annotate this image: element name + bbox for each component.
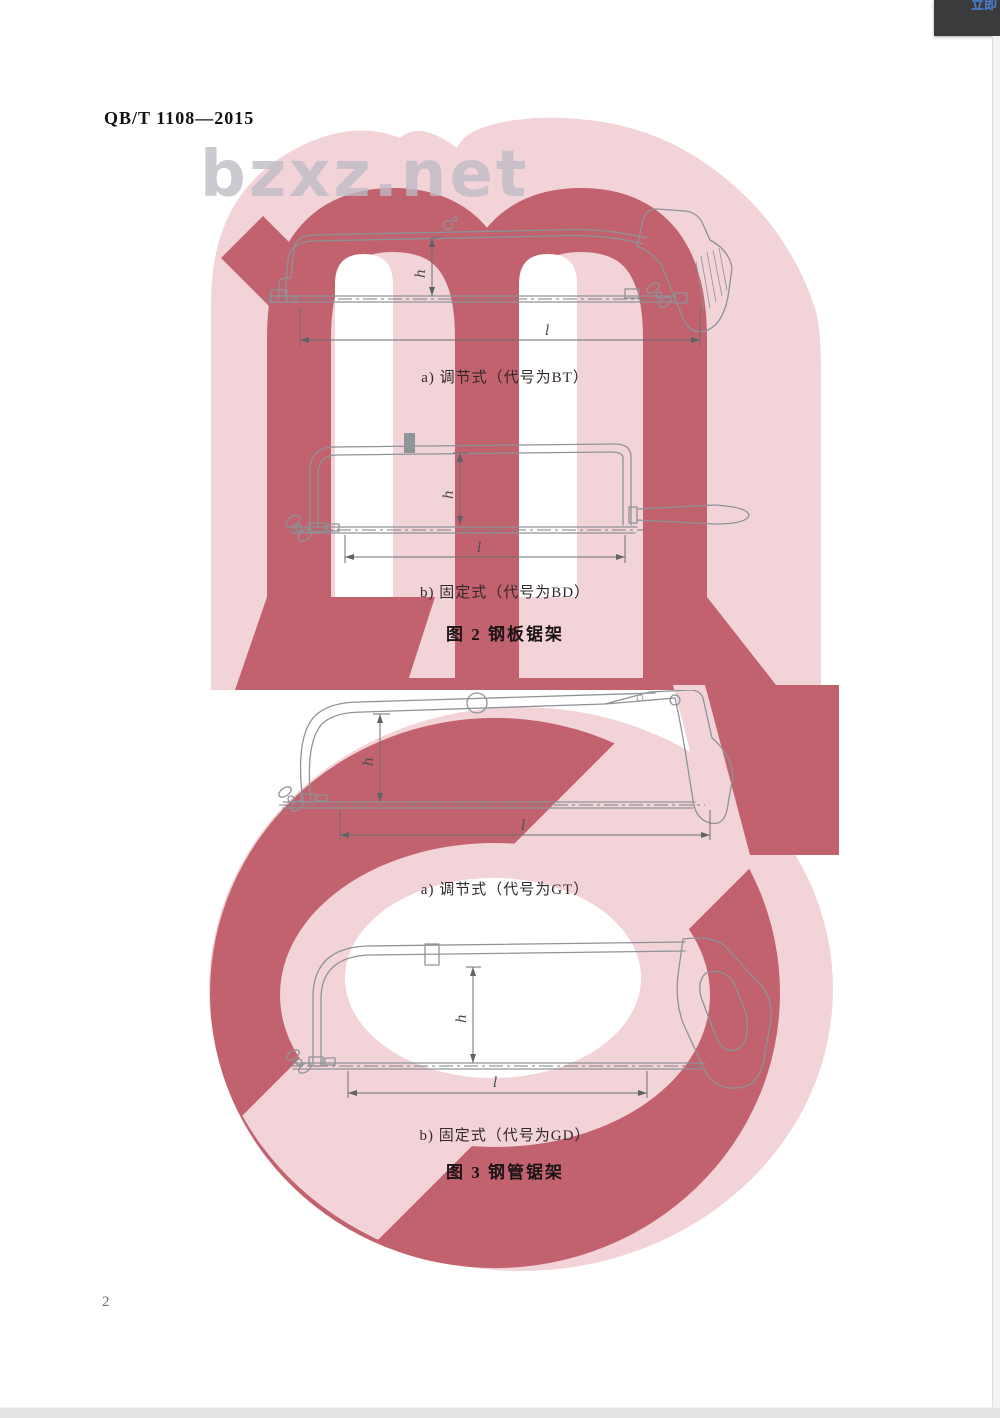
corner-overlay-button[interactable]: 立即 — [934, 0, 1000, 36]
dim-h-label: h — [413, 269, 429, 278]
page-number: 2 — [102, 1294, 110, 1311]
figure3-title: 图 3 钢管锯架 — [205, 1158, 805, 1183]
dim-h-label: h — [361, 757, 377, 766]
figure3-drawing-gt: h l — [275, 690, 775, 855]
dim-l-label: l — [521, 818, 525, 834]
page-bottom-edge — [0, 1407, 1000, 1418]
figure2-caption-b: b) 固定式（代号为BD） — [205, 581, 805, 602]
corner-overlay-label[interactable]: 立即 — [971, 0, 997, 13]
dim-h-label: h — [441, 490, 457, 499]
figure2-caption-a: a) 调节式（代号为BT） — [205, 366, 805, 387]
figure3-drawing-gd: h l — [285, 935, 795, 1110]
dim-l-label: l — [493, 1075, 497, 1091]
figure3-caption-b: b) 固定式（代号为GD） — [205, 1124, 805, 1145]
standard-code: QB/T 1108—2015 — [104, 108, 254, 129]
figure2-title: 图 2 钢板锯架 — [205, 620, 805, 645]
dim-h-label: h — [454, 1014, 470, 1023]
figure2-drawing-bd: h l — [285, 425, 755, 575]
figure3-caption-a: a) 调节式（代号为GT） — [205, 878, 805, 899]
document-page: bzxz.net QB/T 1108—2015 h l — [0, 0, 1000, 1418]
figure2-drawing-bt: h l — [255, 190, 795, 390]
dim-l-label: l — [545, 323, 549, 339]
dim-l-label: l — [477, 540, 481, 556]
page-right-edge — [992, 36, 1000, 1418]
